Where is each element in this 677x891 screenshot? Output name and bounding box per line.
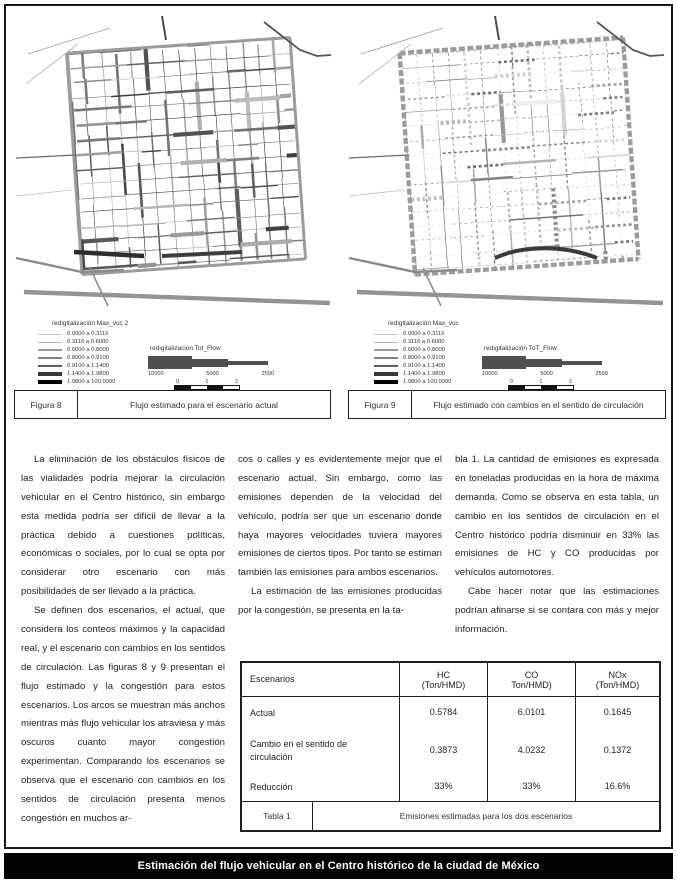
legend-item-label: 1.1400 a 1.9800 [67, 371, 109, 377]
legend-line-sample [38, 380, 62, 385]
figure-8-id: Figura 8 [15, 391, 78, 418]
legend-item: 0.3116 a 0.6000 [374, 338, 459, 346]
flow-value-label: 2500 [262, 371, 274, 377]
flow-legend-title: redigitalización Tot_Flow [150, 345, 274, 352]
legend-item-label: 1.9800 a 100.0000 [403, 379, 451, 385]
scale-tick-label: 1 [206, 379, 209, 385]
flow-legend-title: redigitalización ToT_Flow [484, 345, 608, 352]
legend-item: 1.1400 a 1.9800 [38, 370, 128, 378]
table-cell: 0.3873 [400, 729, 488, 773]
paragraph: Cabe hacer notar que las estimaciones po… [455, 583, 659, 640]
body-column-1: La eliminación de los obstáculos físicos… [21, 451, 225, 829]
legend-item: 0.8000 a 0.9100 [374, 354, 459, 362]
legend-item-label: 0.0000 a 0.3116 [67, 331, 108, 337]
paragraph: La eliminación de los obstáculos físicos… [21, 451, 225, 602]
legend-item: 0.6000 a 0.8000 [38, 346, 128, 354]
legend-item-label: 0.6000 a 0.8000 [403, 347, 445, 353]
paper-page: redigitalización Max_voc 2 0.0000 a 0.31… [0, 0, 677, 891]
legend-line-sample [374, 357, 398, 359]
paragraph: cos o calles y es evidentemente mejor qu… [238, 451, 442, 583]
figure-8-caption: Flujo estimado para el escenario actual [78, 391, 330, 418]
flow-values: 1000050002500 [148, 371, 274, 377]
table-caption: Emisiones estimadas para los dos escenar… [313, 802, 659, 830]
legend-line-sample [374, 334, 398, 335]
table-header-cell: HC(Ton/HMD) [400, 663, 488, 697]
legend-line-sample [38, 342, 62, 343]
figure-9-caption-box: Figura 9 Flujo estimado con cambios en e… [348, 390, 666, 419]
legend-line-sample [38, 357, 62, 359]
legend-line-sample [374, 365, 398, 368]
legend-line-sample [38, 334, 62, 335]
legend-item: 0.8000 a 0.9100 [38, 354, 128, 362]
flow-value-label: 2500 [596, 371, 608, 377]
footer-title-bar: Estimación del flujo vehicular en el Cen… [4, 853, 673, 879]
flow-taper-bar [148, 356, 268, 369]
flow-value-label: 10000 [482, 371, 498, 377]
legend-item: 0.0000 a 0.3116 [38, 330, 128, 338]
legend-item-label: 0.3116 a 0.6000 [67, 339, 108, 345]
figure-9-id: Figura 9 [349, 391, 412, 418]
flow-taper-bar [482, 356, 602, 369]
legend-item: 1.1400 a 1.9800 [374, 370, 459, 378]
legend-item-label: 0.8000 a 0.9100 [67, 355, 109, 361]
table-cell: 33% [488, 773, 576, 801]
flow-value-label: 10000 [148, 371, 164, 377]
legend-line-sample [374, 372, 398, 376]
legend-line-sample [374, 349, 398, 351]
table-row-label: Cambio en el sentido de circulación [242, 729, 400, 773]
legend-line-sample [38, 349, 62, 351]
table-header-cell: Escenarios [242, 663, 400, 697]
legend-item-label: 0.8000 a 0.9100 [403, 355, 445, 361]
emissions-table: EscenariosHC(Ton/HMD)COTon/HMD)NOx(Ton/H… [240, 661, 661, 832]
legend-item-label: 0.6000 a 0.8000 [67, 347, 109, 353]
legend-item: 0.0000 a 0.3116 [374, 330, 459, 338]
legend-item-label: 0.0000 a 0.3116 [403, 331, 444, 337]
table-header-cell: COTon/HMD) [488, 663, 576, 697]
scale-tick-label: 1 [540, 379, 543, 385]
table-cell: 4.0232 [488, 729, 576, 773]
table-cell: 0.1645 [576, 697, 659, 729]
voc-legend-figure-9: redigitalización Max_voc 0.0000 a 0.3116… [374, 320, 459, 386]
voc-legend-title: redigitalización Max_voc [388, 320, 459, 327]
flow-value-label: 5000 [540, 371, 552, 377]
legend-line-sample [374, 380, 398, 385]
scale-tick-label: 2 [235, 379, 238, 385]
legend-line-sample [38, 372, 62, 376]
table-caption-row: Tabla 1 Emisiones estimadas para los dos… [242, 801, 659, 830]
table-cell: 0.1372 [576, 729, 659, 773]
table-row-label: Actual [242, 697, 400, 729]
figure-8-caption-box: Figura 8 Flujo estimado para el escenari… [14, 390, 331, 419]
street-map-figure-8 [12, 6, 332, 308]
paragraph: La estimación de las emisiones producida… [238, 583, 442, 621]
scale-tick-label: 2 [569, 379, 572, 385]
table-cell: 6.0101 [488, 697, 576, 729]
paragraph: bla 1. La cantidad de emisiones es expre… [455, 451, 659, 583]
legend-item-label: 1.1400 a 1.9800 [403, 371, 445, 377]
paragraph: Se definen dos escenarios, el actual, qu… [21, 602, 225, 829]
legend-item: 0.3116 a 0.6000 [38, 338, 128, 346]
voc-legend-title: redigitalización Max_voc 2 [52, 320, 128, 327]
legend-line-sample [374, 342, 398, 343]
scale-tick-label: 0 [510, 379, 513, 385]
flow-values: 1000050002500 [482, 371, 608, 377]
voc-legend-figure-8: redigitalización Max_voc 2 0.0000 a 0.31… [38, 320, 128, 386]
table-id: Tabla 1 [242, 802, 313, 830]
legend-item: 0.6000 a 0.8000 [374, 346, 459, 354]
figure-9-caption: Flujo estimado con cambios en el sentido… [412, 391, 665, 418]
legend-item-label: 0.9100 a 1.1400 [67, 363, 109, 369]
footer-title: Estimación del flujo vehicular en el Cen… [138, 860, 540, 872]
legend-item: 1.9800 a 100.0000 [38, 378, 128, 386]
scale-tick-label: 0 [176, 379, 179, 385]
legend-line-sample [38, 365, 62, 368]
table-cell: 0.5784 [400, 697, 488, 729]
table-cell: 33% [400, 773, 488, 801]
street-map-figure-9 [345, 6, 665, 308]
table-cell: 16.6% [576, 773, 659, 801]
legend-item-label: 0.9100 a 1.1400 [403, 363, 445, 369]
table-header-cell: NOx(Ton/HMD) [576, 663, 659, 697]
flow-value-label: 5000 [206, 371, 218, 377]
table-row-label: Reducción [242, 773, 400, 801]
legend-item: 1.9800 a 100.0000 [374, 378, 459, 386]
legend-item: 0.9100 a 1.1400 [374, 362, 459, 370]
legend-item: 0.9100 a 1.1400 [38, 362, 128, 370]
legend-item-label: 1.9800 a 100.0000 [67, 379, 115, 385]
legend-item-label: 0.3116 a 0.6000 [403, 339, 444, 345]
